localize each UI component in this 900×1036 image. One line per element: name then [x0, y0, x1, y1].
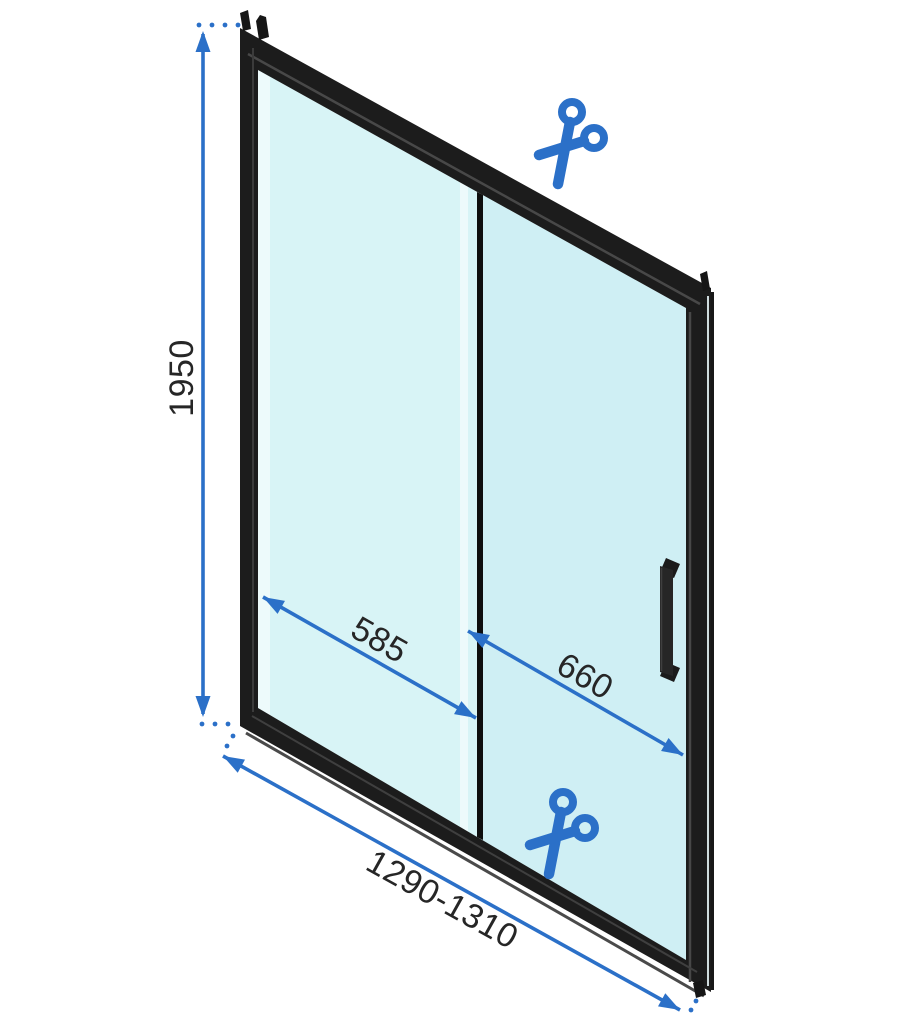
- guide-dot: [236, 23, 241, 28]
- guide-dot: [225, 744, 230, 749]
- guide-dot: [210, 23, 215, 28]
- guide-dot: [694, 999, 699, 1004]
- guide-dot: [689, 1008, 694, 1013]
- technical-drawing-canvas: 1950 585 660 1290-1310: [0, 0, 900, 1036]
- glass-divider-highlight: [460, 182, 468, 832]
- glass-panels: [258, 70, 686, 960]
- shower-door-diagram: 1950 585 660 1290-1310: [0, 0, 900, 1036]
- glass-left-edge-highlight: [258, 70, 270, 715]
- top-left-bracket-tab: [240, 10, 251, 31]
- scissors-icon-top: [539, 102, 604, 184]
- top-left-roller-tab: [256, 15, 269, 40]
- guide-dot: [213, 722, 218, 727]
- panel-divider-edge: [477, 192, 483, 840]
- guide-dot: [231, 734, 236, 739]
- guide-dot: [200, 722, 205, 727]
- total-width-arrow-left: [219, 749, 245, 772]
- total-width-arrow-right: [658, 993, 684, 1016]
- height-dimension-label: 1950: [163, 339, 201, 417]
- guide-dot: [223, 23, 228, 28]
- height-arrow-down: [196, 696, 211, 717]
- scissors-blade: [539, 141, 584, 155]
- glass-panel-door: [477, 192, 686, 960]
- guide-dot: [197, 23, 202, 28]
- guide-dot: [226, 722, 231, 727]
- height-arrow-up: [196, 31, 211, 52]
